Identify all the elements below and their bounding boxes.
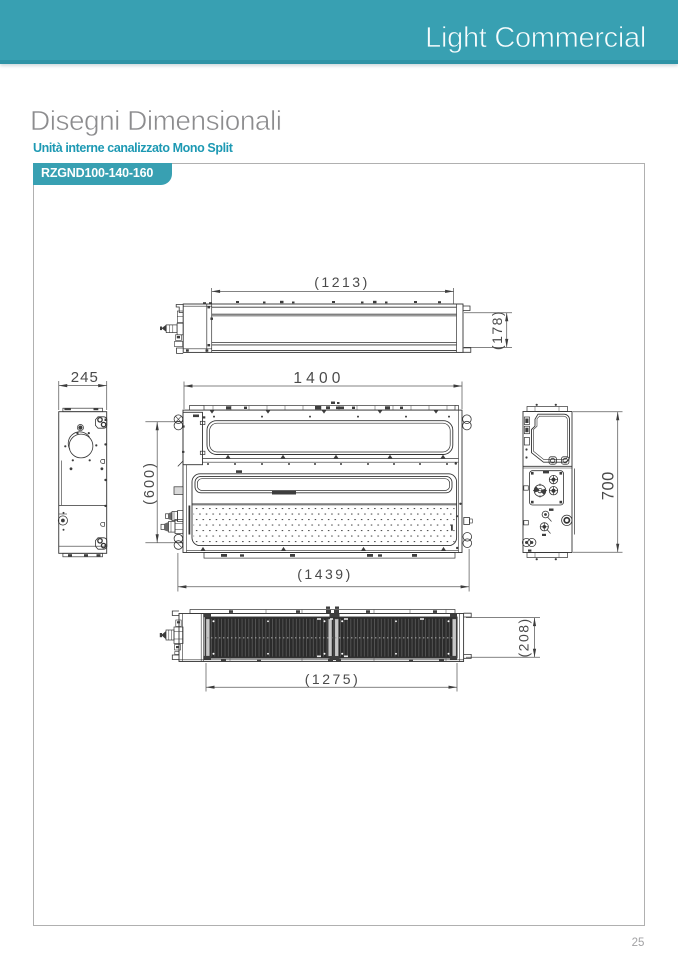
svg-text:(600): (600) (142, 461, 158, 505)
svg-text:(1213): (1213) (314, 274, 369, 290)
svg-text:(1275): (1275) (305, 671, 360, 687)
svg-text:1400: 1400 (293, 370, 344, 387)
svg-text:245: 245 (71, 369, 99, 386)
svg-text:700: 700 (600, 471, 618, 500)
svg-text:(208): (208) (516, 617, 532, 657)
svg-text:(178): (178) (489, 310, 505, 350)
svg-text:(1439): (1439) (297, 566, 352, 582)
